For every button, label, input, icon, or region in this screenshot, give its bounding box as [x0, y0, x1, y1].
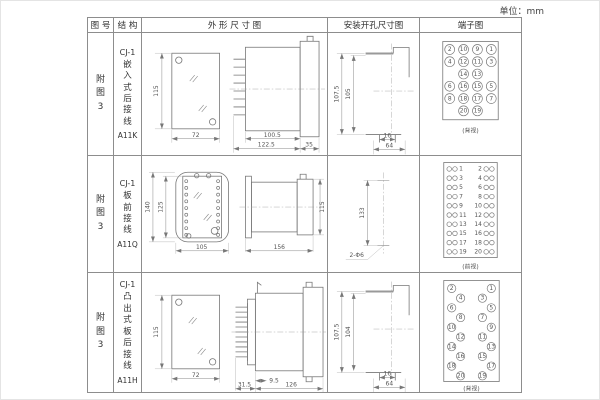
terminal-pin-number: 10 [448, 323, 456, 330]
terminal-pin-number: 20 [474, 248, 482, 255]
terminal-pin [217, 213, 220, 216]
terminal-pin [217, 206, 220, 209]
dim-a11q-side-length: 156 [274, 243, 286, 250]
dim-a11h-front-width: 72 [192, 371, 200, 378]
terminal-pin-number: 9 [489, 323, 493, 330]
terminal-drawing-a11h: 2468101214161820135791113151719 (背视) [420, 273, 521, 393]
terminal-pin [484, 194, 489, 199]
terminal-pin [447, 212, 452, 217]
dim-a11h-mount-inner: 104 [345, 326, 352, 338]
terminal-pin-number: 9 [476, 46, 480, 53]
terminal-pin [453, 249, 458, 254]
dim-a11q-front-inner: 125 [157, 201, 164, 213]
dim-a11h-pin-len: 9.5 [269, 377, 279, 384]
terminal-pin [185, 213, 188, 216]
dim-a11k-side-body: 100.5 [264, 131, 281, 138]
terminal-pin-number: 14 [474, 220, 482, 227]
terminal-pin-number: 16 [460, 83, 468, 90]
terminal-pin [217, 219, 220, 222]
header-cell-outline: 外 形 尺 寸 图 [142, 18, 328, 33]
terminal-pin [484, 221, 489, 226]
top-marker-icon [257, 282, 261, 293]
terminal-pin [217, 233, 220, 236]
terminal-pin [484, 240, 489, 245]
terminal-pin [453, 185, 458, 190]
terminal-pin-number: 8 [459, 314, 463, 321]
terminal-pin-number: 13 [474, 70, 482, 77]
terminal-pin [185, 193, 188, 196]
screw-hole-icon [195, 173, 199, 177]
terminal-pin-number: 11 [479, 333, 487, 340]
terminal-pin-number: 3 [480, 294, 484, 301]
screw-hole-icon [176, 298, 182, 304]
code-a11h: A11H [117, 376, 137, 385]
terminal-pin-number: 2 [478, 165, 482, 172]
terminal-pin [490, 203, 495, 208]
terminal-pin [447, 221, 452, 226]
dim-a11q-front-outer: 140 [144, 201, 151, 213]
header-cell-terminal: 端子图 [420, 18, 522, 33]
model-a11h: CJ-1 [120, 280, 136, 289]
dim-a11k-side-total: 122.5 [258, 141, 275, 148]
dim-a11h-hole-span: 64 [386, 380, 394, 387]
terminal-pin [453, 194, 458, 199]
fig-no-cell-a11h: 附图3 [88, 273, 114, 393]
terminal-pin-number: 6 [478, 184, 482, 191]
terminal-pin [453, 212, 458, 217]
hatch-mark-icon [194, 192, 212, 221]
terminal-pin-number: 11 [474, 58, 482, 65]
dim-a11q-hole-callout: 2-Φ6 [350, 252, 365, 259]
terminal-pin-number: 15 [474, 83, 482, 90]
terminal-pin-number: 14 [448, 343, 456, 350]
dim-a11k-front-height: 115 [153, 85, 160, 97]
mount-type-a11k: 嵌入式后接线 [123, 60, 132, 129]
retainer-clip-icon [307, 36, 313, 41]
terminal-pin-number: 18 [460, 95, 468, 102]
terminal-circles-a11k: 2109141211314136161558181772019 [445, 44, 496, 115]
outline-cell-a11q: 140 125 105 156 115 [142, 156, 328, 273]
terminal-pin [217, 199, 220, 202]
dim-a11k-side-flange: 35 [305, 141, 313, 148]
mounting-cell-a11h: 107.5 104 16 64 [328, 273, 420, 393]
terminal-pin-number: 16 [457, 352, 465, 359]
terminal-pin-number: 7 [489, 95, 493, 102]
fig-no-a11q: 附图3 [96, 194, 105, 235]
outline-cell-a11k: 115 72 100.5 122.5 35 [142, 33, 328, 156]
terminal-cell-a11q: 1234567891011121314151617181920 (前视) [420, 156, 522, 273]
terminal-pin [484, 231, 489, 236]
terminal-pin [217, 179, 220, 182]
header-cell-structure: 结 构 [114, 18, 142, 33]
dim-a11k-hole-span: 64 [386, 142, 394, 149]
dim-a11h-front-height: 115 [153, 326, 160, 338]
structure-cell-a11h: CJ-1 凸出式板后接线 A11H [114, 273, 142, 393]
terminal-pin-number: 19 [479, 372, 487, 379]
mounting-cell-a11q: 133 2-Φ6 [328, 156, 420, 273]
terminal-pin [185, 186, 188, 189]
dim-a11q-front-width: 105 [196, 243, 208, 250]
mount-type-a11h: 凸出式板后接线 [123, 292, 132, 372]
terminal-pin-number: 10 [474, 202, 482, 209]
terminal-pin-number: 12 [457, 333, 465, 340]
terminal-pin [217, 193, 220, 196]
terminal-pin [217, 186, 220, 189]
terminal-pin-number: 19 [474, 107, 482, 114]
header-cell-fig-no: 图 号 [88, 18, 114, 33]
terminal-pin-number: 2 [450, 285, 454, 292]
terminal-pin-number: 6 [450, 304, 454, 311]
screw-hole-icon [206, 173, 210, 177]
terminal-pin [453, 203, 458, 208]
terminal-pin-number: 8 [478, 193, 482, 200]
outline-cell-a11h: 115 72 9.5 31.5 126 [142, 273, 328, 393]
terminal-pin-number: 10 [460, 46, 468, 53]
terminal-pin-number: 15 [459, 230, 467, 237]
terminal-pin-number: 5 [489, 83, 493, 90]
terminal-view-label-a11q: (前视) [462, 262, 479, 270]
terminal-pin [484, 203, 489, 208]
terminal-pin [490, 175, 495, 180]
outline-drawing-a11h: 115 72 9.5 31.5 126 [142, 273, 327, 393]
screw-hole-icon [209, 118, 215, 124]
terminal-pin-number: 12 [474, 211, 482, 218]
screw-hole-icon [209, 358, 215, 364]
terminal-circles-a11h: 2468101214161820135791113151719 [448, 284, 496, 380]
terminal-pin-number: 18 [448, 362, 456, 369]
terminal-pin-number: 12 [460, 58, 468, 65]
dim-a11k-mount-inner: 105 [345, 88, 352, 100]
terminal-pin-number: 8 [448, 95, 452, 102]
document-page: 单位：mm 图 号 结 构 外 形 尺 寸 图 安装开孔尺寸图 端子图 附图3 … [0, 0, 600, 400]
terminal-drawing-a11k: 2109141211314136161558181772019 (背视) [420, 33, 521, 156]
unit-label: 单位：mm [499, 4, 544, 17]
mount-type-a11q: 板前接线 [123, 191, 132, 237]
terminal-pin [490, 194, 495, 199]
mounting-drawing-a11k: 107.5 105 16 64 [328, 33, 419, 156]
code-a11q: A11Q [117, 240, 138, 249]
terminal-pin-number: 20 [457, 372, 465, 379]
terminal-pin-number: 3 [489, 58, 493, 65]
terminal-pin [490, 212, 495, 217]
terminal-pin [453, 240, 458, 245]
mounting-cell-a11k: 107.5 105 16 64 [328, 33, 420, 156]
terminal-pin [447, 249, 452, 254]
terminal-pin [185, 219, 188, 222]
terminal-pin-number: 13 [459, 220, 467, 227]
model-a11k: CJ-1 [120, 48, 136, 57]
terminal-pin-number: 1 [489, 46, 493, 53]
structure-cell-a11q: CJ-1 板前接线 A11Q [114, 156, 142, 273]
hole-center-mark-icon [377, 180, 389, 245]
terminal-pin-number: 5 [489, 304, 493, 311]
terminal-pin [447, 175, 452, 180]
terminal-pin [453, 231, 458, 236]
dim-a11h-base: 31.5 [238, 381, 251, 388]
terminal-pin-number: 6 [448, 83, 452, 90]
terminal-pin [185, 206, 188, 209]
outline-drawing-a11k: 115 72 100.5 122.5 35 [142, 33, 327, 156]
code-a11k: A11K [118, 131, 138, 140]
fig-no-cell-a11q: 附图3 [88, 156, 114, 273]
terminal-drawing-a11q: 1234567891011121314151617181920 (前视) [420, 156, 521, 273]
terminal-pin [490, 240, 495, 245]
terminal-pin-number: 4 [478, 174, 482, 181]
terminal-pin-number: 14 [460, 70, 468, 77]
dim-a11h-side-length: 126 [286, 381, 298, 388]
structure-cell-a11k: CJ-1 嵌入式后接线 A11K [114, 33, 142, 156]
dim-a11q-hole-spacing: 133 [359, 207, 366, 219]
terminal-pin-number: 7 [459, 193, 463, 200]
dim-a11q-side-height: 115 [319, 201, 326, 213]
mounting-drawing-a11h: 107.5 104 16 64 [328, 273, 419, 393]
terminal-pin-number: 4 [448, 58, 452, 65]
terminal-pin-number: 1 [459, 165, 463, 172]
fig-no-a11h: 附图3 [96, 312, 105, 353]
dim-a11k-mount-outer: 107.5 [333, 85, 340, 102]
terminal-pin [447, 185, 452, 190]
terminal-cell-a11h: 2468101214161820135791113151719 (背视) [420, 273, 522, 393]
terminal-pin-number: 15 [479, 352, 487, 359]
terminal-pin [453, 175, 458, 180]
dim-a11h-slot-width: 16 [384, 370, 392, 377]
model-a11q: CJ-1 [120, 179, 136, 188]
terminal-view-label-a11k: (背视) [462, 126, 479, 134]
terminal-pin [490, 185, 495, 190]
terminal-pin [490, 231, 495, 236]
terminal-pin [453, 166, 458, 171]
dim-a11k-slot-width: 16 [384, 132, 392, 139]
terminal-pin [484, 175, 489, 180]
terminal-pins-comb [234, 59, 246, 115]
fig-no-a11k: 附图3 [96, 74, 105, 115]
outline-drawing-a11q: 140 125 105 156 115 [142, 156, 327, 273]
terminal-pin-number: 17 [488, 362, 496, 369]
screw-hole-icon [176, 57, 182, 63]
terminal-pin [185, 199, 188, 202]
terminal-pin [447, 231, 452, 236]
hatch-mark-icon [190, 75, 207, 112]
terminal-cell-a11k: 2109141211314136161558181772019 (背视) [420, 33, 522, 156]
terminal-pin-number: 20 [460, 107, 468, 114]
terminal-pin [484, 185, 489, 190]
terminal-pin-number: 2 [448, 46, 452, 53]
terminal-pin-number: 17 [474, 95, 482, 102]
terminal-circles-a11q: 1234567891011121314151617181920 [447, 165, 494, 255]
fig-no-cell-a11k: 附图3 [88, 33, 114, 156]
hatch-mark-icon [189, 317, 206, 355]
screw-hole-icon [211, 227, 218, 234]
terminal-pin-number: 13 [488, 343, 496, 350]
terminal-pin-number: 18 [474, 239, 482, 246]
terminal-pin-number: 7 [480, 314, 484, 321]
dim-a11h-mount-outer: 107.5 [333, 323, 340, 340]
terminal-pin [490, 166, 495, 171]
terminal-pin [185, 179, 188, 182]
dim-a11k-front-width: 72 [192, 131, 200, 138]
terminal-pin-number: 16 [474, 230, 482, 237]
terminal-pin-number: 9 [459, 202, 463, 209]
terminal-pin [484, 249, 489, 254]
terminal-pin-number: 17 [459, 239, 467, 246]
terminal-pin [447, 194, 452, 199]
terminal-view-label-a11h: (背视) [463, 384, 480, 392]
terminal-pin [447, 203, 452, 208]
terminal-pin [447, 166, 452, 171]
terminal-pin-number: 11 [459, 211, 467, 218]
terminal-pin-number: 1 [489, 285, 493, 292]
terminal-pin [185, 226, 188, 229]
terminal-pin [490, 221, 495, 226]
terminal-pin-number: 3 [459, 174, 463, 181]
header-cell-mounting: 安装开孔尺寸图 [328, 18, 420, 33]
terminal-pin [484, 166, 489, 171]
retainer-clip-icon [300, 174, 306, 179]
terminal-pin-number: 19 [459, 248, 467, 255]
dimension-table: 图 号 结 构 外 形 尺 寸 图 安装开孔尺寸图 端子图 附图3 CJ-1 嵌… [87, 17, 522, 393]
terminal-pin [490, 249, 495, 254]
terminal-pin-number: 4 [459, 294, 463, 301]
terminal-pin [484, 212, 489, 217]
terminal-pin [447, 240, 452, 245]
terminal-pin [453, 221, 458, 226]
mounting-drawing-a11q: 133 2-Φ6 [328, 156, 419, 273]
terminal-pin-number: 5 [459, 184, 463, 191]
